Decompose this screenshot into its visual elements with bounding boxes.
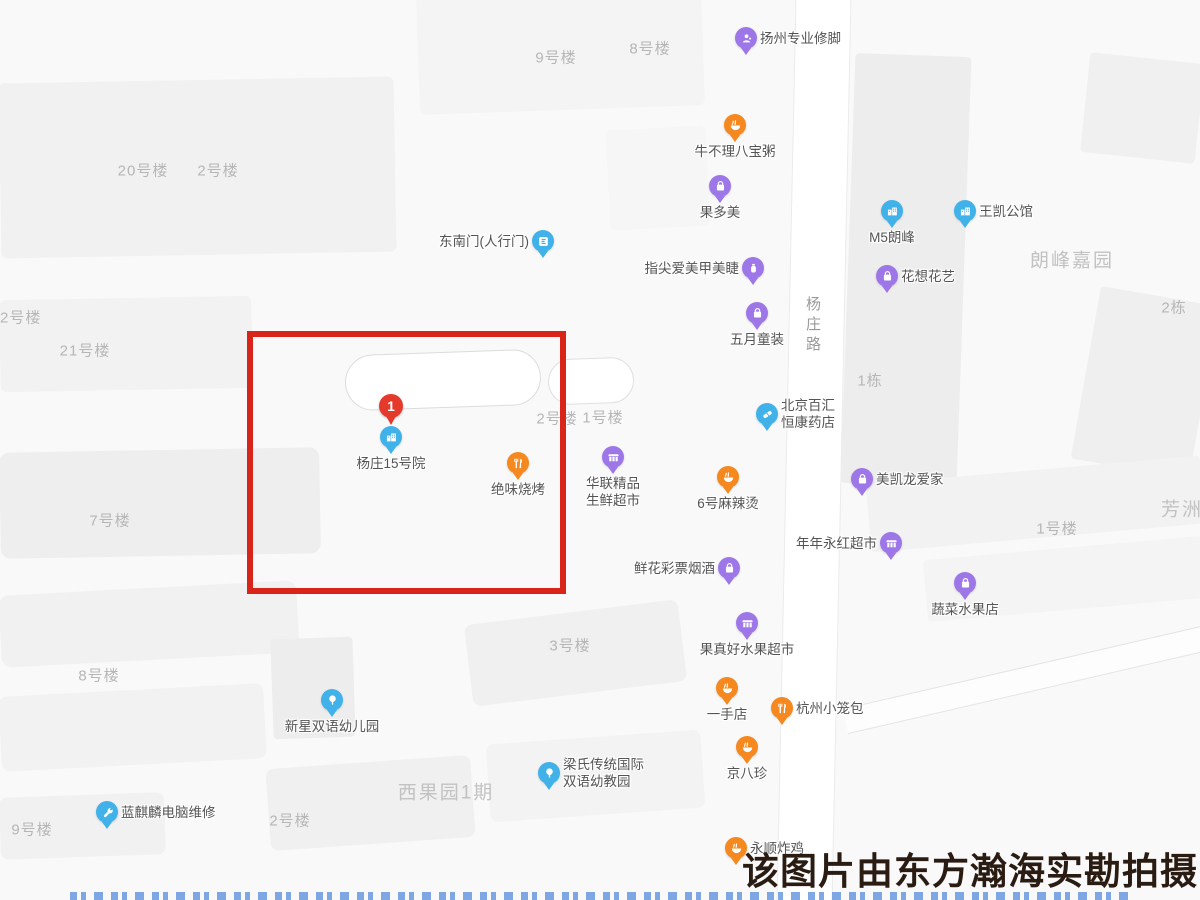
building-label: 2号楼: [269, 810, 310, 831]
highlight-rectangle: [247, 331, 566, 594]
bowl-icon: [724, 114, 746, 136]
poi-label: 蔬菜水果店: [931, 601, 999, 618]
poi-pin-tail: [742, 633, 752, 640]
building-label: 2栋: [1161, 297, 1186, 318]
poi-label: 花想花艺: [901, 268, 955, 285]
poi-pin-tail: [741, 48, 751, 55]
poi-pin-tail: [724, 578, 734, 585]
bag-icon: [718, 557, 740, 579]
poi-pin-tail: [544, 783, 554, 790]
poi-label: 王凯公馆: [979, 203, 1033, 220]
poi-label: 果真好水果超市: [700, 641, 795, 658]
poi-label: 一手店: [707, 706, 748, 723]
poi-label: 果多美: [700, 204, 741, 221]
poi-pin-tail: [752, 323, 762, 330]
tree-icon: [538, 762, 560, 784]
building-label: 1号楼: [1036, 518, 1077, 539]
poi-pin-tail: [742, 757, 752, 764]
building-label: 20号楼: [118, 160, 169, 181]
building-label: 8号楼: [629, 38, 670, 59]
poi-label: 扬州专业修脚: [760, 30, 841, 47]
bowl-icon: [717, 466, 739, 488]
market-icon: [880, 532, 902, 554]
poi-label: 京八珍: [727, 765, 768, 782]
capsule-icon: [756, 403, 778, 425]
poi-label: 杭州小笼包: [796, 700, 864, 717]
poi-pin-tail: [960, 593, 970, 600]
building-icon: [881, 200, 903, 222]
area-label: 朗峰嘉园: [1030, 246, 1114, 273]
poi-label: 指尖爱美甲美睫: [645, 260, 740, 277]
market-icon: [736, 612, 758, 634]
bag-icon: [851, 468, 873, 490]
poi-pin-tail: [882, 286, 892, 293]
poi-pin-tail: [327, 710, 337, 717]
poi-label: 6号麻辣烫: [697, 495, 759, 512]
massage-icon: [735, 27, 757, 49]
building-icon: [954, 200, 976, 222]
building-label: 7号楼: [89, 510, 130, 531]
bag-icon: [709, 175, 731, 197]
poi-label: 牛不理八宝粥: [695, 143, 776, 160]
market-icon: [602, 446, 624, 468]
poi-pin-tail: [857, 489, 867, 496]
poi-label: 蓝麒麟电脑维修: [121, 804, 216, 821]
building-label: 9号楼: [11, 819, 52, 840]
poi-pin-tail: [960, 221, 970, 228]
building-label: 1栋: [857, 370, 882, 391]
poi-pin-tail: [762, 424, 772, 431]
bowl-icon: [716, 677, 738, 699]
building-label: 22号楼: [0, 307, 41, 328]
poi-pin-tail: [777, 718, 787, 725]
map-canvas[interactable]: 9号楼8号楼20号楼2号楼22号楼21号楼2号楼1号楼7号楼1号楼8号楼3号楼9…: [0, 0, 1200, 900]
poi-label: 梁氏传统国际双语幼教园: [563, 756, 644, 790]
bag-icon: [746, 302, 768, 324]
poi-label: M5朗峰: [869, 229, 915, 246]
poi-pin-tail: [715, 196, 725, 203]
poi-label: 北京百汇恒康药店: [781, 397, 835, 431]
poi-pin-tail: [608, 467, 618, 474]
poi-label: 新星双语幼儿园: [285, 718, 380, 735]
building-label: 21号楼: [60, 340, 111, 361]
poi-label: 五月童装: [730, 331, 784, 348]
area-label: 芳洲: [1161, 495, 1200, 522]
poi-pin-tail: [748, 278, 758, 285]
tree-icon: [321, 689, 343, 711]
gate-icon: [532, 230, 554, 252]
road-label: 杨庄路: [802, 296, 823, 356]
poi-label: 东南门(人行门): [439, 233, 529, 250]
poi-pin-tail: [887, 221, 897, 228]
forkknife-icon: [771, 697, 793, 719]
building-label: 2号楼: [197, 160, 238, 181]
building-label: 1号楼: [582, 407, 623, 428]
bag-icon: [954, 572, 976, 594]
watermark-text: 该图片由东方瀚海实勘拍摄: [742, 841, 1198, 895]
wrench-icon: [96, 801, 118, 823]
building-label: 8号楼: [78, 665, 119, 686]
poi-pin-tail: [538, 251, 548, 258]
bag-icon: [876, 265, 898, 287]
poi-label: 华联精品生鲜超市: [586, 475, 640, 509]
poi-pin-tail: [886, 553, 896, 560]
poi-pin-tail: [102, 822, 112, 829]
poi-pin-tail: [723, 487, 733, 494]
poi-label: 鲜花彩票烟酒: [634, 560, 715, 577]
building-label: 3号楼: [549, 635, 590, 656]
poi-pin-tail: [731, 858, 741, 865]
poi-pin-tail: [722, 698, 732, 705]
bowl-icon: [736, 736, 758, 758]
poi-label: 年年永红超市: [796, 535, 877, 552]
poi-label: 美凯龙爱家: [876, 471, 944, 488]
building-label: 9号楼: [535, 47, 576, 68]
nail-icon: [742, 257, 764, 279]
poi-pin-tail: [730, 135, 740, 142]
area-label: 西果园1期: [398, 778, 495, 805]
